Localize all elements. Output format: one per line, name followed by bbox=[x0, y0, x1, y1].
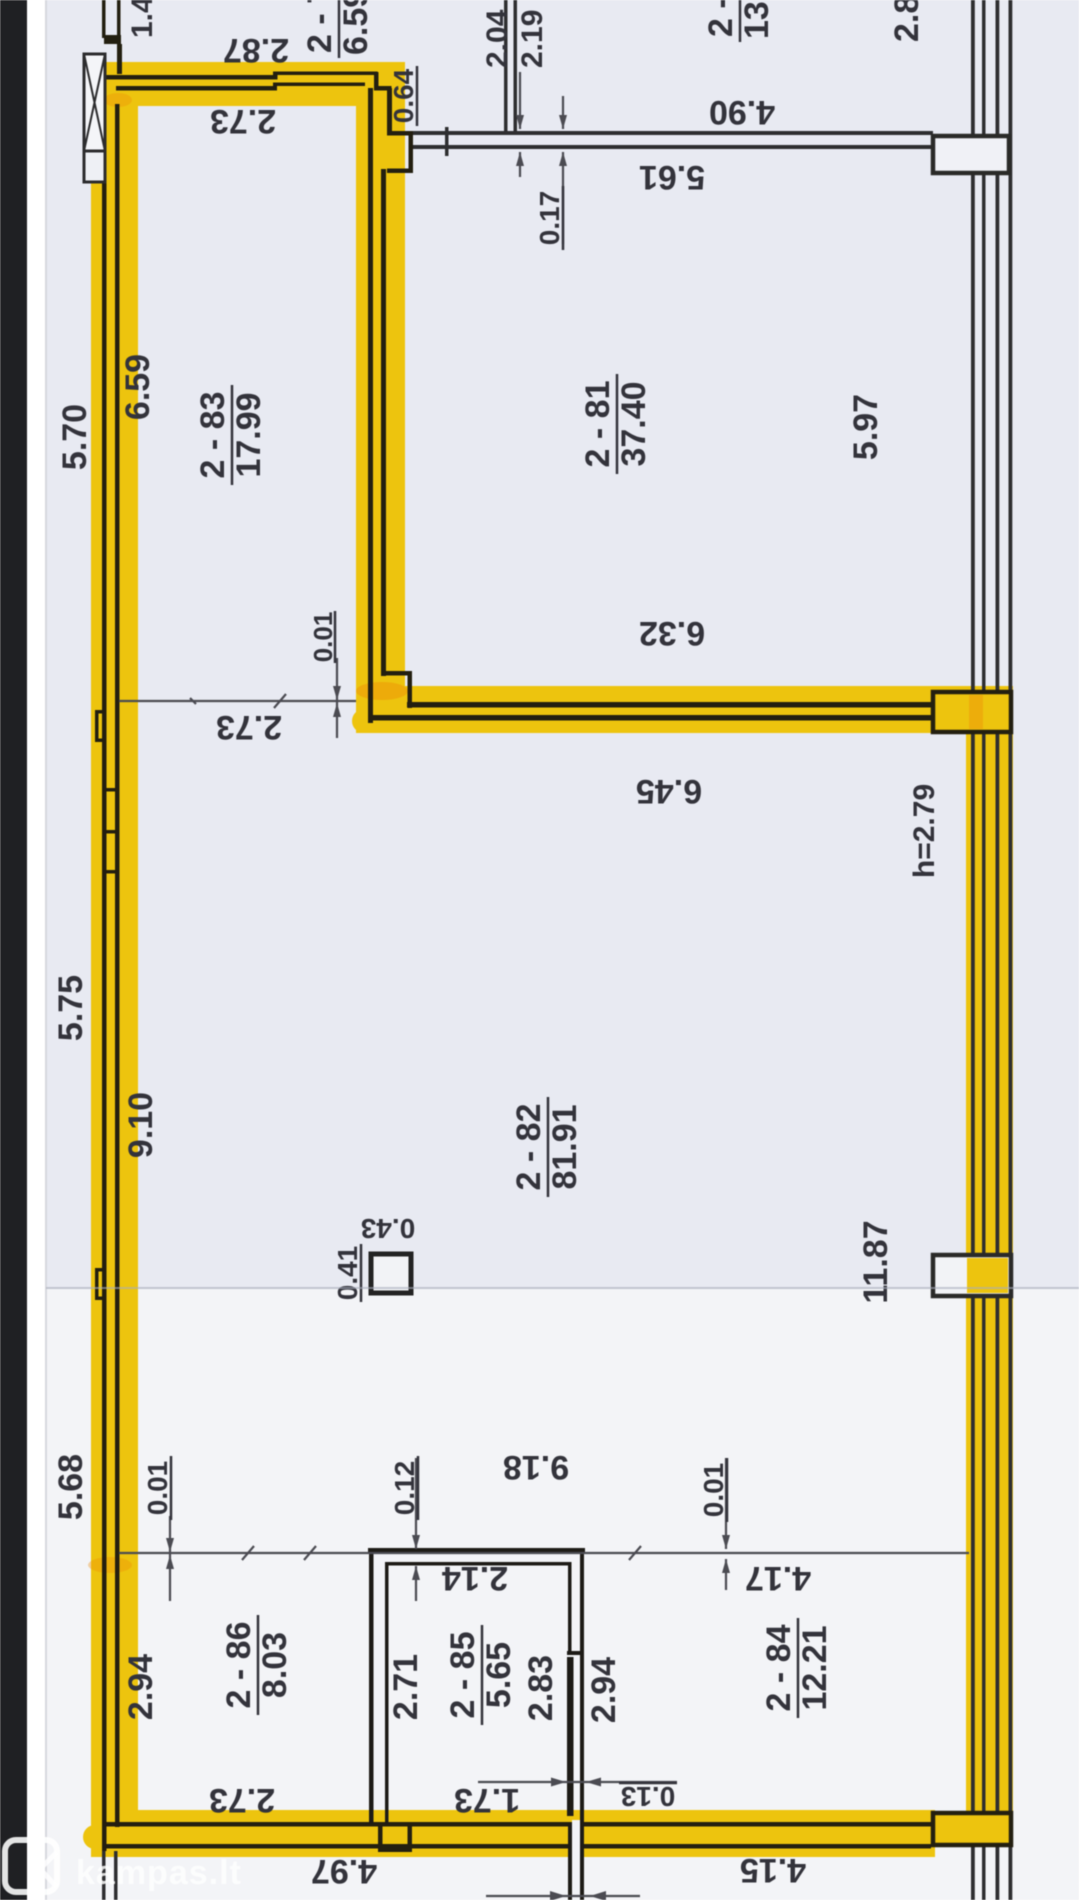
svg-text:2.83: 2.83 bbox=[522, 1655, 560, 1721]
svg-text:2 - 84: 2 - 84 bbox=[760, 1624, 798, 1711]
svg-text:0.64: 0.64 bbox=[388, 68, 419, 123]
svg-text:0.01: 0.01 bbox=[698, 1463, 729, 1518]
svg-text:2.14: 2.14 bbox=[442, 1559, 508, 1597]
svg-text:13.6: 13.6 bbox=[738, 0, 776, 39]
svg-text:6.59: 6.59 bbox=[119, 354, 157, 420]
svg-text:2 - 86: 2 - 86 bbox=[220, 1622, 258, 1709]
svg-text:4.90: 4.90 bbox=[709, 93, 775, 131]
svg-text:2.73: 2.73 bbox=[216, 708, 282, 746]
svg-text:6.45: 6.45 bbox=[636, 772, 702, 810]
svg-text:6.59: 6.59 bbox=[337, 0, 375, 55]
svg-text:5.68: 5.68 bbox=[52, 1454, 90, 1520]
svg-text:5.61: 5.61 bbox=[639, 158, 705, 196]
svg-text:2.71: 2.71 bbox=[387, 1654, 425, 1720]
svg-text:0.13: 0.13 bbox=[621, 1781, 676, 1812]
svg-text:2 - 83: 2 - 83 bbox=[194, 392, 232, 479]
svg-text:2.87: 2.87 bbox=[223, 31, 289, 69]
svg-text:2.94: 2.94 bbox=[585, 1657, 623, 1723]
svg-text:0.12: 0.12 bbox=[389, 1461, 420, 1516]
svg-text:12.21: 12.21 bbox=[796, 1625, 834, 1710]
svg-text:2.94: 2.94 bbox=[122, 1654, 160, 1720]
svg-text:1.4: 1.4 bbox=[126, 0, 159, 38]
svg-text:2 - 7: 2 - 7 bbox=[301, 0, 339, 53]
svg-text:5.75: 5.75 bbox=[52, 975, 90, 1041]
svg-text:2 - 82: 2 - 82 bbox=[510, 1104, 548, 1191]
svg-text:2 - 7: 2 - 7 bbox=[702, 0, 740, 37]
svg-text:9.18: 9.18 bbox=[503, 1448, 569, 1486]
svg-text:0.43: 0.43 bbox=[361, 1213, 416, 1244]
svg-text:4.15: 4.15 bbox=[740, 1851, 806, 1889]
svg-text:5.65: 5.65 bbox=[480, 1642, 518, 1708]
svg-text:9.10: 9.10 bbox=[122, 1092, 160, 1158]
svg-text:6.32: 6.32 bbox=[639, 614, 705, 652]
svg-text:2.87: 2.87 bbox=[888, 0, 926, 42]
svg-text:0.17: 0.17 bbox=[534, 191, 565, 246]
svg-text:4.97: 4.97 bbox=[311, 1852, 377, 1890]
svg-text:2.04: 2.04 bbox=[481, 9, 514, 68]
svg-text:2.73: 2.73 bbox=[209, 1781, 275, 1819]
svg-text:0.01: 0.01 bbox=[142, 1461, 173, 1516]
svg-text:5.97: 5.97 bbox=[847, 394, 885, 460]
svg-text:4.17: 4.17 bbox=[745, 1559, 811, 1597]
svg-text:h=2.79: h=2.79 bbox=[908, 784, 941, 878]
svg-text:5.70: 5.70 bbox=[56, 404, 94, 470]
svg-text:37.40: 37.40 bbox=[615, 381, 653, 466]
svg-text:0.01: 0.01 bbox=[308, 612, 338, 663]
svg-text:2.73: 2.73 bbox=[210, 102, 276, 140]
svg-text:11.87: 11.87 bbox=[857, 1220, 895, 1303]
svg-text:17.99: 17.99 bbox=[230, 392, 268, 477]
svg-text:81.91: 81.91 bbox=[546, 1104, 584, 1189]
svg-text:2 - 85: 2 - 85 bbox=[444, 1632, 482, 1719]
svg-text:8.03: 8.03 bbox=[256, 1632, 294, 1698]
svg-text:1.73: 1.73 bbox=[454, 1781, 520, 1819]
svg-text:2 - 81: 2 - 81 bbox=[579, 381, 617, 468]
svg-text:0.41: 0.41 bbox=[332, 1246, 363, 1301]
svg-text:2.19: 2.19 bbox=[516, 10, 549, 68]
svg-text:kampas.lt: kampas.lt bbox=[76, 1854, 242, 1892]
